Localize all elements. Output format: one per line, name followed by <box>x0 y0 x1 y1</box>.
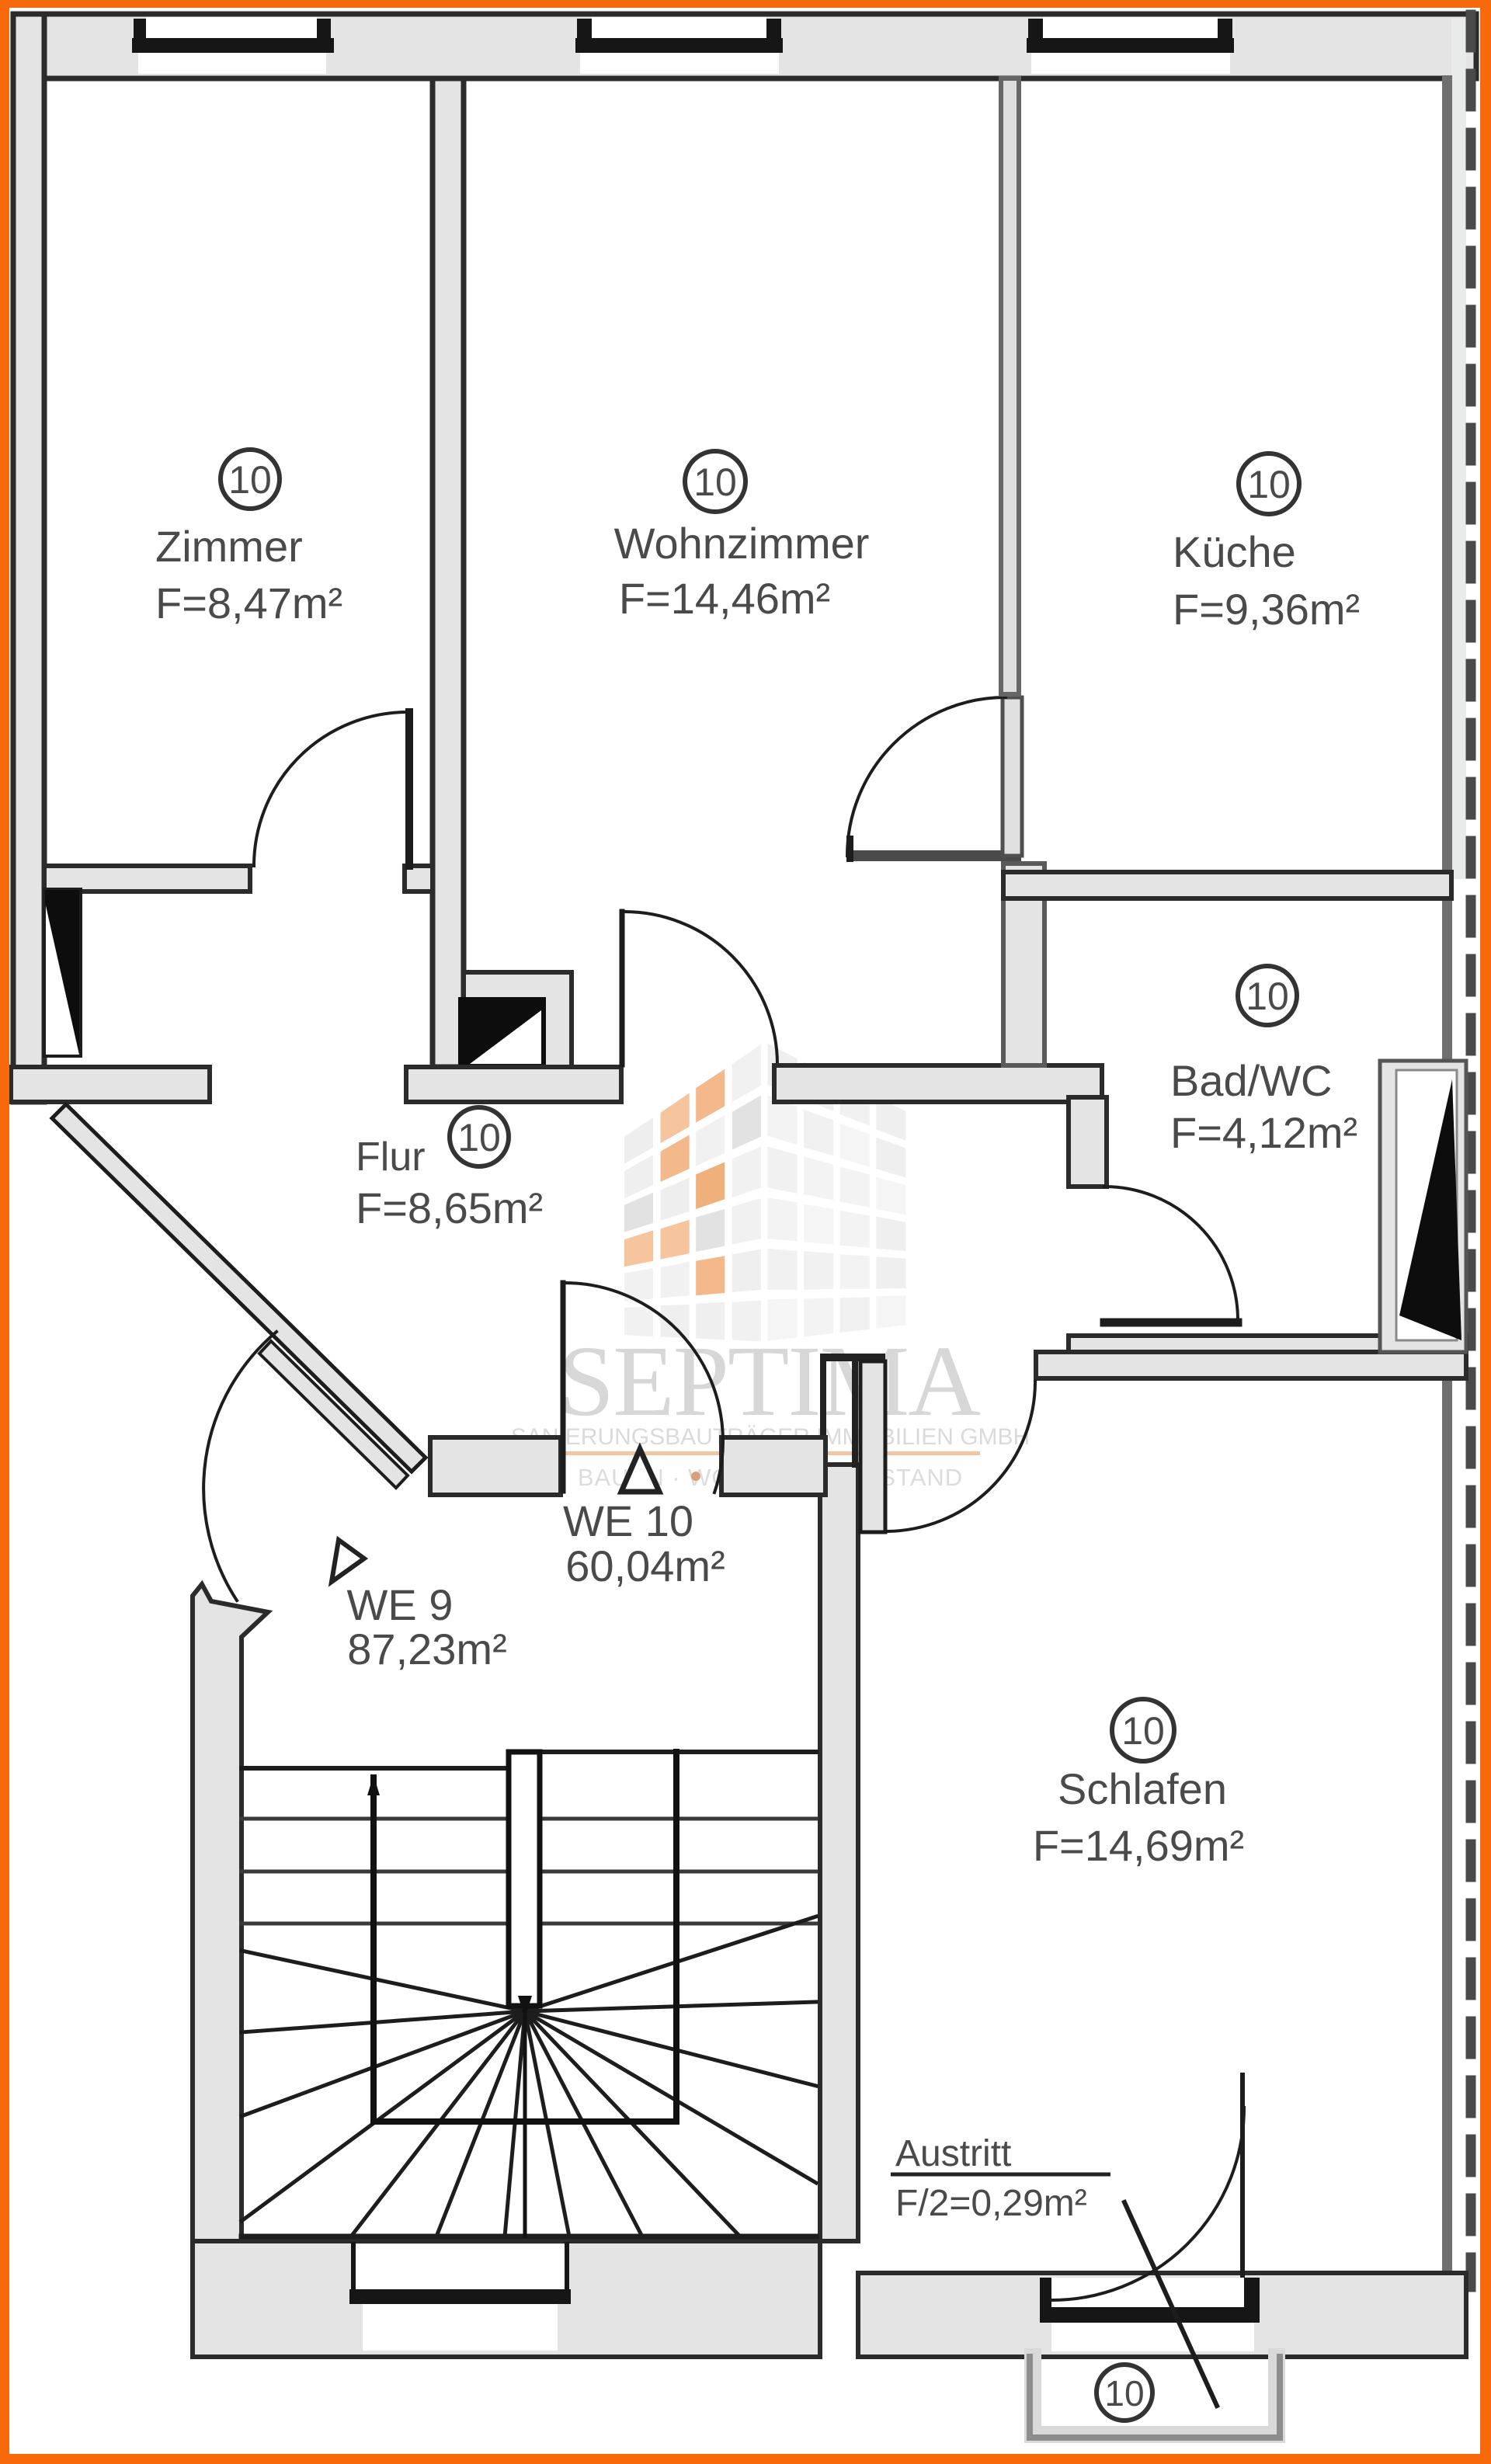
svg-text:10: 10 <box>693 460 737 504</box>
svg-text:F=14,69m²: F=14,69m² <box>1033 1821 1244 1870</box>
svg-text:F=8,65m²: F=8,65m² <box>356 1183 543 1232</box>
svg-text:10: 10 <box>1121 1709 1165 1753</box>
svg-text:Flur: Flur <box>356 1135 426 1180</box>
svg-text:Zimmer: Zimmer <box>155 522 303 571</box>
svg-text:F=14,46m²: F=14,46m² <box>619 574 830 623</box>
svg-text:SEPTIMA: SEPTIMA <box>558 1326 980 1437</box>
svg-text:10: 10 <box>1246 975 1289 1018</box>
svg-text:F=4,12m²: F=4,12m² <box>1170 1108 1357 1157</box>
svg-text:WE 10: WE 10 <box>563 1496 693 1545</box>
svg-text:87,23m²: 87,23m² <box>347 1625 506 1673</box>
svg-text:Bad/WC: Bad/WC <box>1170 1056 1333 1105</box>
svg-text:Küche: Küche <box>1173 527 1296 576</box>
svg-text:WE 9: WE 9 <box>347 1580 454 1629</box>
svg-text:Schlafen: Schlafen <box>1058 1764 1227 1813</box>
svg-text:10: 10 <box>457 1116 501 1159</box>
svg-text:F/2=0,29m²: F/2=0,29m² <box>895 2183 1087 2224</box>
svg-text:10: 10 <box>228 458 272 502</box>
svg-text:10: 10 <box>1104 2373 1144 2414</box>
svg-text:Austritt: Austritt <box>895 2133 1011 2174</box>
svg-text:60,04m²: 60,04m² <box>565 1541 725 1590</box>
svg-text:10: 10 <box>1247 463 1291 506</box>
svg-text:F=9,36m²: F=9,36m² <box>1173 585 1360 634</box>
svg-text:F=8,47m²: F=8,47m² <box>155 579 342 627</box>
svg-text:Wohnzimmer: Wohnzimmer <box>614 519 870 568</box>
